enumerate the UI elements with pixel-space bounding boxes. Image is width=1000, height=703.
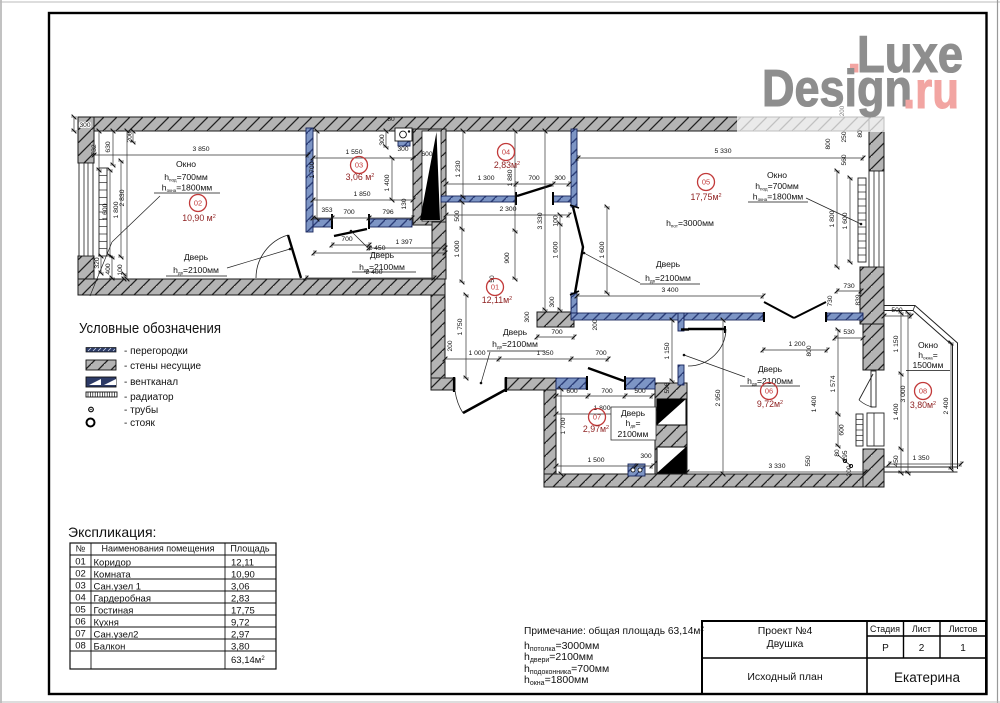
svg-text:17,75м2: 17,75м2 <box>690 192 721 202</box>
svg-text:1 750: 1 750 <box>457 318 464 335</box>
svg-text:300: 300 <box>397 146 408 153</box>
svg-text:1 350: 1 350 <box>912 455 929 462</box>
svg-text:Стадия: Стадия <box>870 624 900 634</box>
svg-text:05: 05 <box>702 178 710 187</box>
svg-text:01: 01 <box>75 557 86 568</box>
svg-text:1 000: 1 000 <box>454 240 461 257</box>
svg-text:05: 05 <box>75 605 86 616</box>
svg-text:04: 04 <box>75 593 86 604</box>
svg-text:80: 80 <box>857 130 864 138</box>
svg-text:530: 530 <box>843 329 855 336</box>
svg-text:07: 07 <box>75 629 86 640</box>
svg-text:200: 200 <box>592 319 599 330</box>
svg-text:2,97м2: 2,97м2 <box>583 424 609 434</box>
svg-text:Листов: Листов <box>949 624 978 634</box>
svg-text:Коридор: Коридор <box>94 558 132 569</box>
svg-text:1 500: 1 500 <box>587 457 604 464</box>
svg-text:700: 700 <box>341 236 353 243</box>
svg-text:3 400: 3 400 <box>661 287 678 294</box>
svg-text:300: 300 <box>379 134 386 146</box>
svg-text:Гардеробная: Гардеробная <box>94 594 151 605</box>
svg-text:Дверь: Дверь <box>184 252 209 262</box>
svg-text:1 850: 1 850 <box>353 191 370 198</box>
svg-text:Окно: Окно <box>176 159 196 169</box>
svg-text:Экспликация:: Экспликация: <box>68 524 156 540</box>
svg-text:300: 300 <box>554 175 566 182</box>
svg-text:03: 03 <box>75 581 86 592</box>
svg-text:Дверь: Дверь <box>370 250 395 260</box>
svg-text:1 880: 1 880 <box>507 169 514 186</box>
svg-text:3 330: 3 330 <box>537 212 544 229</box>
svg-text:Окно: Окно <box>918 340 938 350</box>
svg-text:600: 600 <box>839 424 846 436</box>
svg-text:500: 500 <box>454 210 461 222</box>
svg-text:1 700: 1 700 <box>309 161 316 178</box>
svg-text:1 574: 1 574 <box>830 375 837 392</box>
svg-text:02: 02 <box>75 569 86 580</box>
svg-text:80: 80 <box>387 116 395 123</box>
svg-text:Балкон: Балкон <box>94 642 126 653</box>
svg-text:3,06 м2: 3,06 м2 <box>346 172 375 182</box>
svg-text:1: 1 <box>960 643 966 654</box>
svg-text:560: 560 <box>841 154 848 165</box>
svg-text:800: 800 <box>825 138 832 149</box>
svg-text:63,14м2: 63,14м2 <box>231 655 265 666</box>
svg-text:550: 550 <box>805 455 812 466</box>
svg-text:796: 796 <box>382 209 394 216</box>
svg-text:300: 300 <box>640 453 652 460</box>
svg-text:730: 730 <box>827 295 834 306</box>
svg-text:- стояк: - стояк <box>124 418 156 429</box>
svg-text:839: 839 <box>855 294 862 305</box>
svg-text:1 600: 1 600 <box>599 241 606 258</box>
svg-text:600: 600 <box>421 151 432 158</box>
svg-text:03: 03 <box>355 161 363 170</box>
svg-text:- перегородки: - перегородки <box>124 346 188 357</box>
svg-text:Сан.узел 1: Сан.узел 1 <box>94 582 142 593</box>
svg-text:1 400: 1 400 <box>384 174 391 191</box>
svg-text:295: 295 <box>842 450 849 461</box>
svg-text:Дверь: Дверь <box>621 408 646 418</box>
svg-text:10,90 м2: 10,90 м2 <box>182 213 216 223</box>
svg-text:Исходный план: Исходный план <box>747 671 822 683</box>
svg-text:1 600: 1 600 <box>842 212 849 229</box>
svg-text:2 400: 2 400 <box>943 397 950 414</box>
svg-text:3 850: 3 850 <box>192 146 209 153</box>
svg-text:Наименования помещения: Наименования помещения <box>101 544 214 554</box>
svg-text:2 950: 2 950 <box>715 389 722 406</box>
svg-text:1500мм: 1500мм <box>913 360 944 370</box>
svg-text:1 550: 1 550 <box>345 149 362 156</box>
svg-text:Комната: Комната <box>94 570 132 581</box>
svg-text:№: № <box>76 544 86 554</box>
svg-text:08: 08 <box>75 641 86 652</box>
svg-text:06: 06 <box>765 387 773 396</box>
svg-text:5 330: 5 330 <box>714 148 731 155</box>
svg-text:08: 08 <box>919 387 927 396</box>
svg-text:200: 200 <box>127 131 134 143</box>
svg-text:500: 500 <box>634 388 646 395</box>
svg-text:Двушка: Двушка <box>767 638 804 650</box>
svg-text:300: 300 <box>524 311 531 322</box>
svg-text:12,11м2: 12,11м2 <box>482 295 512 305</box>
svg-text:300: 300 <box>549 296 556 307</box>
svg-text:700: 700 <box>601 388 613 395</box>
svg-text:Design: Design <box>762 60 912 118</box>
svg-text:2,83: 2,83 <box>231 594 250 605</box>
svg-text:2: 2 <box>919 643 925 654</box>
svg-text:Площадь: Площадь <box>230 544 269 554</box>
svg-text:80: 80 <box>834 449 841 457</box>
svg-text:Р: Р <box>882 643 889 654</box>
svg-text:1 230: 1 230 <box>455 160 462 177</box>
svg-text:Дверь: Дверь <box>503 327 528 337</box>
svg-text:9,72: 9,72 <box>231 618 250 629</box>
svg-text:2 300: 2 300 <box>499 206 516 213</box>
svg-text:630: 630 <box>105 141 112 153</box>
svg-text:Гостиная: Гостиная <box>94 606 134 617</box>
svg-text:1 800: 1 800 <box>829 210 836 227</box>
svg-text:700: 700 <box>595 350 607 357</box>
svg-text:3 000: 3 000 <box>900 385 907 402</box>
svg-text:- радиатор: - радиатор <box>124 392 174 403</box>
svg-text:3 330: 3 330 <box>768 463 785 470</box>
svg-text:10,90: 10,90 <box>231 570 255 581</box>
svg-text:1 300: 1 300 <box>477 175 494 182</box>
svg-text:400: 400 <box>105 263 112 275</box>
svg-text:300: 300 <box>79 122 90 129</box>
svg-text:Кухня: Кухня <box>94 618 119 629</box>
svg-text:130: 130 <box>401 198 408 209</box>
svg-text:2100мм: 2100мм <box>618 429 649 439</box>
svg-text:900: 900 <box>504 252 511 264</box>
svg-text:2,97: 2,97 <box>231 630 250 641</box>
svg-text:12,11: 12,11 <box>231 558 254 569</box>
svg-text:732: 732 <box>91 144 98 156</box>
svg-text:100: 100 <box>117 264 124 276</box>
svg-text:Окно: Окно <box>767 170 787 180</box>
svg-text:3,80м2: 3,80м2 <box>910 400 936 410</box>
svg-text:- вентканал: - вентканал <box>124 377 178 388</box>
svg-text:- трубы: - трубы <box>124 404 158 416</box>
svg-text:450: 450 <box>893 455 900 467</box>
svg-text:1 150: 1 150 <box>664 342 671 359</box>
svg-text:Примечание: общая площадь 63,1: Примечание: общая площадь 63,14м2 <box>524 625 704 637</box>
svg-text:1 150: 1 150 <box>893 335 900 352</box>
svg-text:04: 04 <box>502 148 510 157</box>
svg-text:598: 598 <box>664 382 671 393</box>
svg-text:700: 700 <box>528 175 540 182</box>
svg-text:.ru: .ru <box>903 62 959 120</box>
svg-text:07: 07 <box>593 413 601 422</box>
svg-text:02: 02 <box>194 199 202 208</box>
svg-text:Дверь: Дверь <box>656 259 681 269</box>
svg-text:3,06: 3,06 <box>231 582 250 593</box>
svg-text:800: 800 <box>806 345 813 356</box>
svg-text:100: 100 <box>553 215 560 227</box>
svg-text:Условные обозначения: Условные обозначения <box>79 321 221 337</box>
svg-text:2 830: 2 830 <box>119 189 126 206</box>
svg-text:9,72м2: 9,72м2 <box>757 399 783 409</box>
svg-text:1 600: 1 600 <box>553 241 560 258</box>
svg-text:1 600: 1 600 <box>102 203 109 220</box>
svg-text:600: 600 <box>566 388 578 395</box>
svg-text:Проект №4: Проект №4 <box>758 625 813 637</box>
svg-text:700: 700 <box>343 209 355 216</box>
svg-text:Сан.узел2: Сан.узел2 <box>94 630 139 641</box>
svg-text:Лист: Лист <box>912 624 931 634</box>
svg-text:1 400: 1 400 <box>811 395 818 412</box>
svg-text:1 400: 1 400 <box>893 403 900 420</box>
svg-text:1 397: 1 397 <box>395 239 412 246</box>
svg-text:353: 353 <box>321 207 332 214</box>
svg-text:200: 200 <box>447 340 454 351</box>
svg-text:17,75: 17,75 <box>231 606 255 617</box>
svg-text:250: 250 <box>841 131 848 142</box>
svg-text:1 800: 1 800 <box>113 201 120 218</box>
svg-text:1 200: 1 200 <box>788 341 805 348</box>
svg-text:Екатерина: Екатерина <box>894 670 960 685</box>
svg-text:200: 200 <box>846 465 853 476</box>
svg-text:3,80: 3,80 <box>231 642 250 653</box>
svg-text:700: 700 <box>551 329 563 336</box>
svg-text:730: 730 <box>843 283 855 290</box>
svg-text:1 000: 1 000 <box>468 350 485 357</box>
svg-text:1 700: 1 700 <box>560 417 567 434</box>
svg-text:01: 01 <box>491 283 499 292</box>
svg-text:320: 320 <box>94 257 101 269</box>
svg-text:Дверь: Дверь <box>758 364 783 374</box>
svg-text:06: 06 <box>75 617 86 628</box>
svg-text:- стены несущие: - стены несущие <box>124 361 202 372</box>
svg-text:2,83м2: 2,83м2 <box>494 160 520 170</box>
